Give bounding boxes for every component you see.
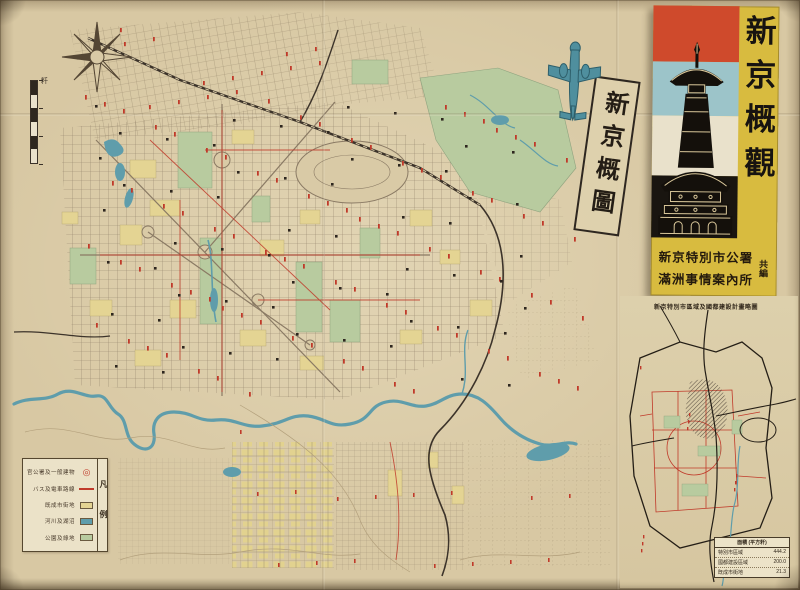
legend-row-buildings: 官公署及一般建物 ◎ <box>27 464 95 480</box>
scale-unit-label: 粁 <box>41 76 48 86</box>
publisher-suffix: 共編 <box>757 259 770 277</box>
green-swatch-icon <box>80 534 93 541</box>
booklet-cover: 新京概觀 新京特別市公署 滿洲事情案內所 共編 <box>650 5 779 296</box>
cover-publisher: 新京特別市公署 滿洲事情案內所 共編 <box>656 246 773 288</box>
memorial-tower-icon <box>656 39 736 238</box>
red-double-circle-icon: ◎ <box>83 468 91 477</box>
inset-plan-map: 新京特別市區域及國都建設計畫略圖 面積 (平方粁) 特別市區域444.2 國都建… <box>620 296 798 588</box>
cover-title: 新京概觀 <box>733 14 780 252</box>
table-header: 面積 (平方粁) <box>715 538 789 548</box>
blue-swatch-icon <box>80 518 93 525</box>
scale-bar: 粁 <box>26 76 48 168</box>
scale-bar-segments <box>30 80 38 164</box>
cover-title-column: 新京概觀 <box>737 14 777 252</box>
legend-title: 凡例 <box>98 470 109 540</box>
red-line-icon <box>79 488 94 490</box>
airplane-icon <box>544 39 603 129</box>
publisher-line-1: 新京特別市公署 <box>659 246 754 266</box>
scanned-map-sheet: 粁 新京概圖 <box>0 0 800 590</box>
legend-box: 官公署及一般建物 ◎ バス及電車路線 既成市街地 河川及湖沼 公園及綠地 凡例 <box>22 458 108 552</box>
legend-row-parks: 公園及綠地 <box>27 530 95 546</box>
inset-title: 新京特別市區域及國都建設計畫略圖 <box>620 302 792 311</box>
yellow-swatch-icon <box>80 502 93 509</box>
legend-title-column: 凡例 <box>97 459 109 551</box>
inset-area-table: 面積 (平方粁) 特別市區域444.2 國都建設區域200.0 既成市街地21.… <box>714 537 790 578</box>
legend-row-water: 河川及湖沼 <box>27 513 95 529</box>
legend-row-builtup: 既成市街地 <box>27 497 95 513</box>
legend-row-transit: バス及電車路線 <box>27 480 95 496</box>
table-row: 特別市區域444.2 <box>715 548 789 558</box>
table-row: 既成市街地21.3 <box>715 568 789 577</box>
table-row: 國都建設區域200.0 <box>715 558 789 568</box>
compass-rose-icon <box>60 20 134 94</box>
publisher-line-2: 滿洲事情案內所 <box>658 268 753 288</box>
